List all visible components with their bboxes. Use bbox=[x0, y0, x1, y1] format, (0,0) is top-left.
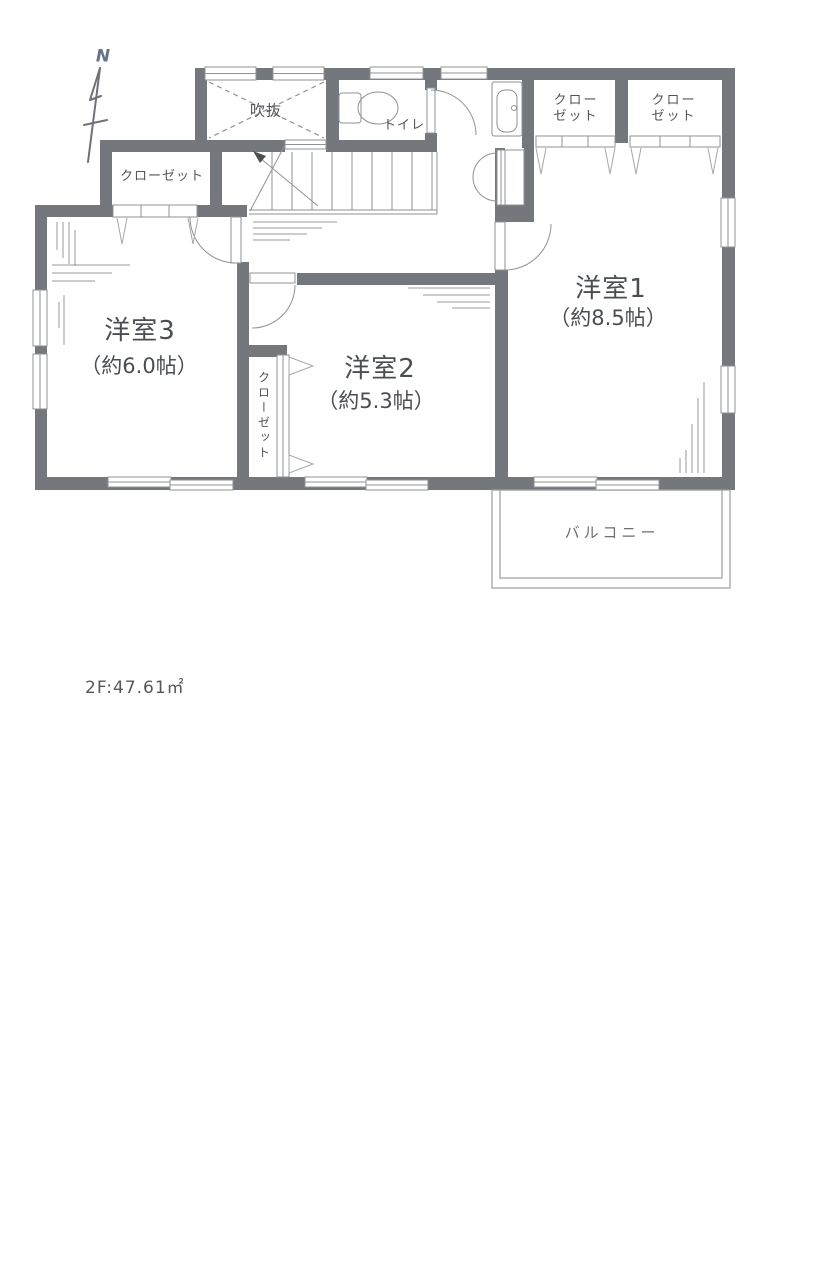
room2-name-label: 洋室2 bbox=[344, 353, 416, 386]
room2-size-label: （約5.3帖） bbox=[317, 388, 434, 414]
closet-right-2-label: クロー ゼット bbox=[651, 93, 696, 126]
corner-hatch-marks bbox=[52, 222, 704, 473]
compass-north-label: N bbox=[96, 46, 110, 67]
washbasin-fixture bbox=[492, 82, 522, 136]
room3-size-label: （約6.0帖） bbox=[80, 353, 197, 379]
closet-middle-label: クローゼット bbox=[256, 371, 271, 461]
toilet-room-label: トイレ bbox=[383, 118, 425, 134]
balcony-label: バルコニー bbox=[565, 524, 660, 543]
closet-top-left-label: クローゼット bbox=[120, 169, 204, 185]
floorplan-page: N 吹抜 トイレ クローゼット クロー ゼット クロー ゼット 洋室1 （約8.… bbox=[0, 0, 818, 1280]
void-room-label: 吹抜 bbox=[250, 102, 282, 121]
room1-name-label: 洋室1 bbox=[575, 273, 647, 306]
room3-name-label: 洋室3 bbox=[104, 315, 176, 348]
room1-size-label: （約8.5帖） bbox=[549, 305, 666, 331]
closet-hanger-marks bbox=[117, 148, 718, 244]
closet-fold-triangles bbox=[289, 357, 313, 473]
floor-area-label: 2F:47.61㎡ bbox=[85, 673, 185, 698]
closet-right-1-label: クロー ゼット bbox=[553, 93, 598, 126]
stairs bbox=[249, 143, 437, 214]
